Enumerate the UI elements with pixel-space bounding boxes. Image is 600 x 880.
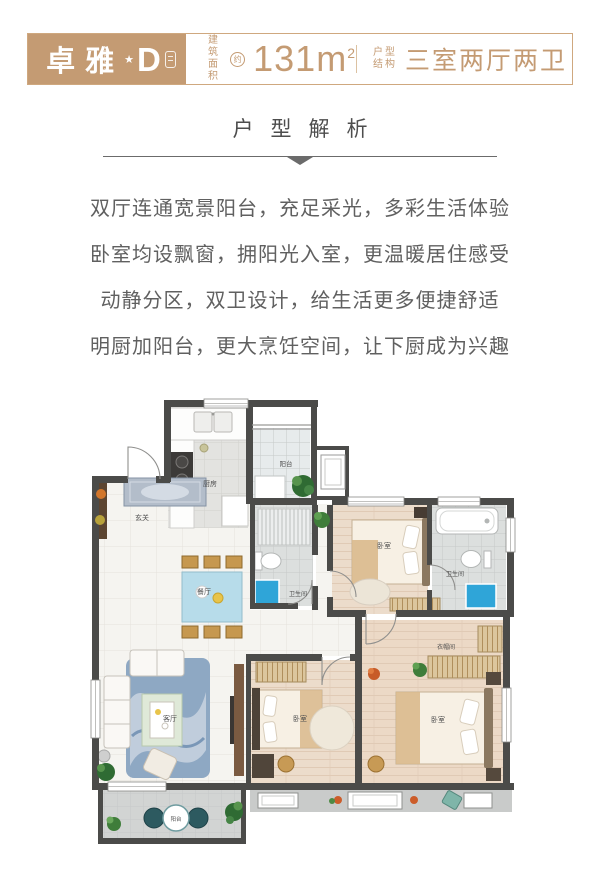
chair-icon [226,626,242,638]
fridge-icon [222,496,248,526]
chair-icon [278,756,294,772]
window-icon [91,680,100,738]
window-icon [506,518,515,552]
chair-icon [204,626,220,638]
room-label-bedroom-middle: 卧室 [293,714,307,723]
plant-icon [368,668,380,680]
chair-icon [368,756,384,772]
balcony-top-fittings [255,476,285,500]
nightstand-icon [486,768,501,781]
section-head: 户型解析 [0,113,600,157]
area-label-line1: 建筑 [208,35,222,59]
section-title: 户型解析 [216,113,385,143]
shower-icon [255,580,279,606]
sink-icon [194,412,212,432]
area-label: 建筑 面积 [208,35,222,83]
room-label-balcony-top: 阳台 [280,459,293,468]
dining-table-icon [182,572,242,622]
area-label-line2: 面积 [208,59,222,83]
logo-badge-icon [165,51,176,68]
desk-icon [252,754,274,778]
header-bar: 卓雅 ZHUOYA ★ D 建筑 面积 约 131m2 户型 结构 三室两厅两卫 [27,33,573,85]
chair-icon [144,808,164,828]
door-arc-icon [128,447,160,479]
structure-label-line1: 户型 [373,47,397,59]
window-icon [348,497,404,506]
room-label-living: 客厅 [163,714,177,723]
ac-panel-icon [321,455,345,489]
chair-icon [182,556,198,568]
structure-label: 户型 结构 [373,47,397,71]
description-line: 卧室均设飘窗，拥阳光入室，更温暖居住感受 [0,232,600,278]
logo-name-en: ZHUOYA [102,46,108,72]
room-label-cloakroom: 衣帽间 [437,643,455,651]
bay-window-icon [258,793,298,808]
room-label-balcony-bottom: 阳台 [170,815,182,823]
plant-icon [97,763,115,781]
bay-window-icon [348,792,402,809]
chair-icon [204,556,220,568]
structure-spec: 户型 结构 三室两厅两卫 [357,34,572,84]
toilet-icon [461,551,481,568]
approx-circle-icon: 约 [230,52,245,67]
window-icon [438,497,480,506]
floorplan: 厨房 阳台 玄关 餐厅 卫生间 卧室 卫生间 客厅 卧室 卧室 衣帽间 阳台 [85,395,525,865]
description-line: 明厨加阳台，更大烹饪空间，让下厨成为兴趣 [0,324,600,370]
logo-box: 卓雅 ZHUOYA ★ D [28,34,186,84]
window-icon [204,399,248,408]
description-line: 双厅连通宽景阳台，充足采光，多彩生活体验 [0,186,600,232]
section-divider [103,156,497,157]
plant-icon [292,475,314,497]
structure-label-line2: 结构 [373,59,397,71]
room-label-dining: 餐厅 [197,587,211,596]
description: 双厅连通宽景阳台，充足采光，多彩生活体验 卧室均设飘窗，拥阳光入室，更温暖居住感… [0,186,600,370]
star-icon: ★ [124,53,134,66]
sofa-icon [104,676,130,748]
room-label-kitchen: 厨房 [203,479,217,488]
chair-icon [182,626,198,638]
logo-variant: D [137,43,161,76]
description-line: 动静分区，双卫设计，给生活更多便捷舒适 [0,278,600,324]
area-spec: 建筑 面积 约 131m2 [186,34,356,84]
plant-icon [314,512,330,528]
room-label-bedroom-right: 卧室 [431,715,445,724]
shower-icon [466,584,496,608]
sink-icon [214,412,232,432]
window-icon [502,688,511,742]
structure-value: 三室两厅两卫 [405,41,567,77]
bay-window-icon [464,793,492,808]
room-label-bedroom-top: 卧室 [377,541,391,550]
chair-icon [226,556,242,568]
nightstand-icon [486,672,501,685]
room-label-foyer: 玄关 [135,513,149,522]
area-value: 131m2 [253,38,356,80]
triangle-down-icon [287,157,313,165]
tv-icon [230,696,234,744]
toilet-icon [261,553,281,569]
page: 卓雅 ZHUOYA ★ D 建筑 面积 约 131m2 户型 结构 三室两厅两卫… [0,0,600,880]
window-icon [108,782,166,791]
dining-set [182,556,242,638]
window-icon [252,425,311,429]
room-label-bath-right: 卫生间 [446,570,464,578]
room-label-bath-middle: 卫生间 [289,590,307,598]
rug-icon [310,706,354,750]
logo-name-cn: 卓雅 [46,38,124,80]
chair-icon [188,808,208,828]
tv-cabinet-icon [234,664,244,776]
